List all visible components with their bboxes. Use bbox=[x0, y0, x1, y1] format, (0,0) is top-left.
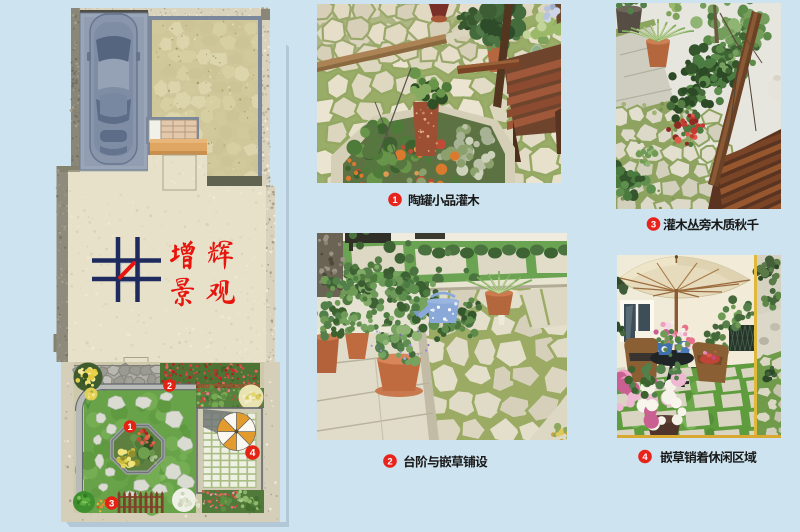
svg-text:1: 1 bbox=[127, 422, 132, 432]
svg-text:4: 4 bbox=[642, 452, 648, 463]
svg-text:3: 3 bbox=[651, 220, 656, 231]
svg-text:3: 3 bbox=[109, 498, 114, 509]
svg-text:4: 4 bbox=[250, 447, 256, 459]
svg-text:1: 1 bbox=[392, 195, 398, 206]
svg-text:2: 2 bbox=[387, 457, 392, 468]
svg-text:2: 2 bbox=[167, 381, 172, 391]
